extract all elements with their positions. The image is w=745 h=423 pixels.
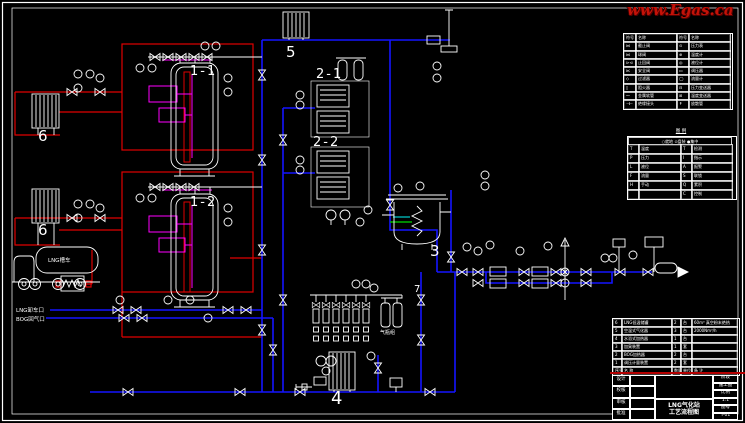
table-cell: ⊙ — [677, 42, 689, 50]
unloading-port-label: LNG卸车口 — [16, 306, 44, 314]
watermark: www.Egas.ca — [627, 1, 734, 19]
table-cell — [692, 343, 737, 351]
table-cell: 累积 — [692, 181, 732, 190]
table-cell — [628, 190, 639, 199]
table-cell: 温度计 — [689, 51, 730, 59]
table-cell: 加臭装置 — [622, 343, 672, 351]
equipment — [12, 10, 688, 392]
vent-stack — [427, 10, 457, 52]
table-cell: ◎ — [677, 59, 689, 67]
table-cell: 空温式气化器 — [622, 327, 672, 335]
table-cell: ⊕ — [677, 51, 689, 59]
role-approve: 批准 — [612, 409, 630, 420]
legend-table: 符号名称符号名称⋈截止阀⊙压力表⋈球阀⊕温度计⊳⊲止回阀◎液位计⋉安全阀▭调压器… — [623, 33, 733, 110]
bog-unit-2-2 — [311, 147, 369, 225]
table-cell: 温度 — [639, 145, 681, 154]
table-cell: 台 — [681, 319, 692, 327]
vaporizer-4 — [329, 352, 355, 392]
role-check-name — [630, 386, 655, 397]
table-cell: A — [681, 163, 692, 172]
table-cell — [692, 359, 737, 367]
table-cell: 截止阀 — [636, 42, 677, 50]
table-cell: 安全阀 — [636, 67, 677, 75]
table-cell: 2000Nm³/h — [692, 327, 737, 335]
table-cell: 套 — [681, 359, 692, 367]
table-cell — [692, 335, 737, 343]
table-cell: 名称 — [636, 34, 677, 42]
table-cell: 联锁 — [692, 172, 732, 181]
bog-return-label: BOG回气口 — [16, 315, 45, 323]
role-design-name — [630, 375, 655, 386]
table-cell: 绝缘接头 — [636, 100, 677, 108]
table-cell: ▭ — [677, 67, 689, 75]
table-cell: 〜 — [624, 92, 636, 100]
equipment-number-labels: 1-1 1-2 2-1 2-2 3 4 5 6 6 7 — [38, 43, 440, 409]
table-cell: ⋈ — [624, 51, 636, 59]
magenta-signal-lines — [149, 60, 212, 288]
table-cell: T — [628, 145, 639, 154]
heater-5 — [283, 12, 309, 40]
table-cell: 台 — [681, 335, 692, 343]
table-cell: 2 — [672, 319, 681, 327]
table-cell: 5 — [613, 327, 622, 335]
table-cell: BOG加热器 — [622, 351, 672, 359]
table-cell: P — [628, 154, 639, 163]
table-cell: 流量计 — [689, 75, 730, 83]
table-cell: 报警 — [692, 163, 732, 172]
role-design: 设计 — [612, 375, 630, 386]
vaporizer6a-label: 6 — [38, 127, 48, 145]
table-cell: 1 — [613, 359, 622, 367]
table-cell: LNG低温储罐 — [622, 319, 672, 327]
table-cell: H — [628, 181, 639, 190]
table-cell: ◯ — [677, 75, 689, 83]
drawing-title-line2: 工艺流程图 — [669, 410, 699, 417]
table-cell — [692, 351, 737, 359]
table-cell: ◇ — [624, 75, 636, 83]
table-cell: T — [681, 145, 692, 154]
vaporizer6b-label: 6 — [38, 221, 48, 239]
drawing-title: LNG气化站 工艺流程图 — [655, 399, 713, 420]
letter-table-title: 图 例 — [627, 128, 735, 134]
table-cell: L — [628, 163, 639, 172]
vaporizer4-label: 4 — [331, 388, 342, 409]
valve-symbols — [67, 54, 653, 396]
table-cell: F — [628, 172, 639, 181]
table-cell: 过滤器 — [636, 75, 677, 83]
tank2-label: 1-2 — [190, 195, 217, 210]
table-cell: 3 — [672, 327, 681, 335]
title-block-spacer — [655, 375, 713, 399]
bom-table: 6LNG低温储罐2台60m³ 真空粉末绝热5空温式气化器3台2000Nm³/h4… — [612, 318, 740, 376]
table-cell: ▯ — [624, 84, 636, 92]
table-cell: 压力变送器 — [689, 84, 730, 92]
table-cell: 控制 — [692, 190, 732, 199]
table-cell: ⋉ — [624, 67, 636, 75]
table-cell: 放散管 — [689, 100, 730, 108]
role-review-name — [630, 398, 655, 409]
table-cell: 2 — [672, 351, 681, 359]
instrument-code-table-body: T温度T检测P压力I指示L液位A报警F流量S联锁H手动Q累积C控制 — [627, 145, 737, 200]
role-review: 审核 — [612, 398, 630, 409]
gas-cylinder-group — [381, 295, 402, 327]
table-cell: Q — [681, 181, 692, 190]
table-cell: 压力表 — [689, 42, 730, 50]
unit21-label: 2-1 — [316, 67, 343, 82]
cad-pid-drawing: 1-1 1-2 2-1 2-2 3 4 5 6 6 7 LNG槽车 LNG卸车口… — [0, 0, 745, 423]
table-cell: I — [681, 154, 692, 163]
table-cell: C — [681, 190, 692, 199]
table-cell: ↟ — [677, 100, 689, 108]
red-strike-line — [610, 372, 745, 374]
table-cell: ⋈ — [624, 42, 636, 50]
table-cell: 止回阀 — [636, 59, 677, 67]
table-cell: 1 — [672, 335, 681, 343]
table-cell: 水浴式加热器 — [622, 335, 672, 343]
table-cell: 温度变送器 — [689, 92, 730, 100]
aux-lines — [390, 217, 412, 222]
table-cell: 4 — [613, 335, 622, 343]
role-check: 校核 — [612, 386, 630, 397]
table-cell: 套 — [681, 343, 692, 351]
table-cell: ⊣⊢ — [624, 100, 636, 108]
table-cell: 台 — [681, 351, 692, 359]
unit22-label: 2-2 — [313, 135, 340, 150]
table-cell: 符号 — [624, 34, 636, 42]
table-cell: 压力 — [639, 154, 681, 163]
table-cell: 调压器 — [689, 67, 730, 75]
table-cell: 液位计 — [689, 59, 730, 67]
table-cell: 6 — [613, 319, 622, 327]
odorizer-label: 3 — [430, 242, 440, 260]
role-approve-name — [630, 409, 655, 420]
table-cell: 调压计量装置 — [622, 359, 672, 367]
table-cell: 1 — [672, 343, 681, 351]
table-cell: 手动 — [639, 181, 681, 190]
table-cell: 2 — [672, 359, 681, 367]
table-cell: 阻火器 — [636, 84, 677, 92]
table-cell: 流量 — [639, 172, 681, 181]
field-number-value: Y-01 — [713, 413, 738, 421]
table-cell: 台 — [681, 327, 692, 335]
junction7-label: 7 — [414, 284, 420, 295]
table-cell: ⊟ — [677, 84, 689, 92]
heater5-label: 5 — [286, 43, 296, 61]
table-cell: ⊳⊲ — [624, 59, 636, 67]
table-cell: 球阀 — [636, 51, 677, 59]
table-cell: 指示 — [692, 154, 732, 163]
table-cell: ⊞ — [677, 92, 689, 100]
table-cell: 60m³ 真空粉末绝热 — [692, 319, 737, 327]
table-cell: 3 — [613, 343, 622, 351]
table-cell: 金属软管 — [636, 92, 677, 100]
field-scale-label: 比例 — [713, 390, 738, 398]
lng-tanker-truck — [12, 247, 100, 290]
field-stage-label: 阶段 — [713, 375, 738, 383]
table-cell: 检测 — [692, 145, 732, 154]
field-stage-value: 施工图 — [713, 383, 738, 391]
table-cell: 符号 — [677, 34, 689, 42]
field-scale-value: 1:1 — [713, 398, 738, 406]
truck-label: LNG槽车 — [48, 256, 71, 264]
table-cell: 名称 — [689, 34, 730, 42]
table-cell: 液位 — [639, 163, 681, 172]
instrument-bubbles — [74, 42, 637, 360]
tank1-label: 1-1 — [190, 64, 217, 79]
table-cell — [639, 190, 681, 199]
cylinder-group-label: 气瓶组 — [380, 329, 395, 336]
table-cell: S — [681, 172, 692, 181]
field-number-label: 图号 — [713, 405, 738, 413]
table-cell: 2 — [613, 351, 622, 359]
